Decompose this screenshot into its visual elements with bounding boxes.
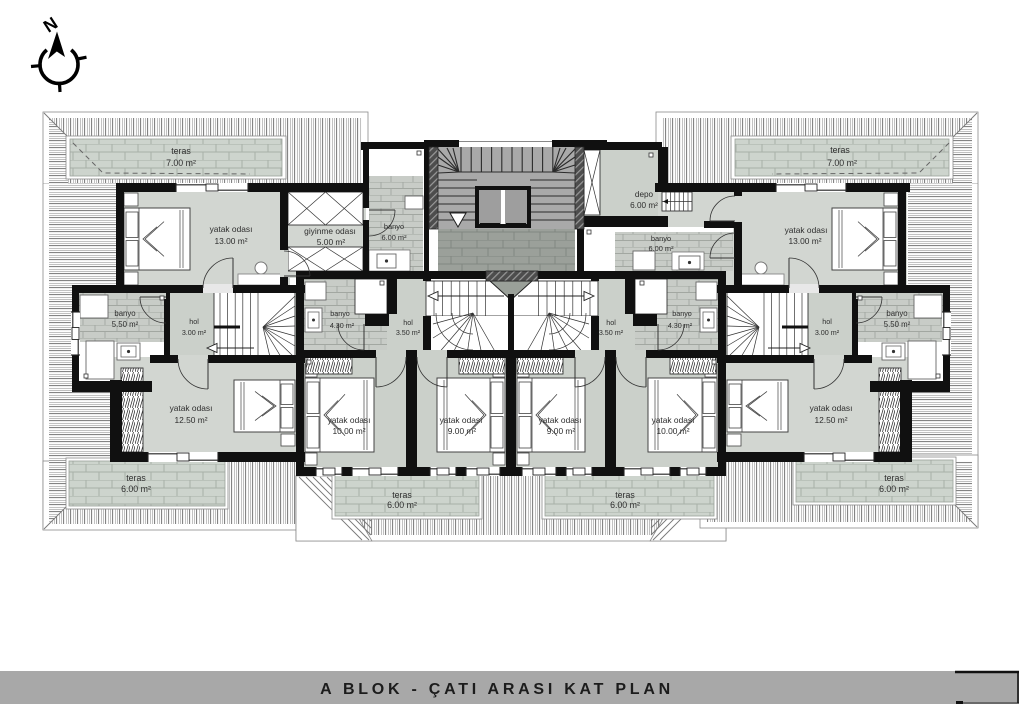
svg-text:yatak odası: yatak odası [210, 224, 253, 234]
svg-text:12.50 m²: 12.50 m² [814, 415, 847, 425]
svg-text:6.00 m²: 6.00 m² [387, 500, 417, 510]
svg-text:hol: hol [189, 317, 199, 326]
svg-text:6.00 m²: 6.00 m² [648, 244, 674, 253]
svg-text:banyo: banyo [886, 309, 908, 318]
svg-text:A BLOK - ÇATI ARASI KAT PLAN: A BLOK - ÇATI ARASI KAT PLAN [320, 681, 674, 698]
svg-text:yatak odası: yatak odası [810, 403, 853, 413]
svg-text:6.00 m²: 6.00 m² [630, 201, 658, 210]
svg-text:6.00 m²: 6.00 m² [879, 484, 909, 494]
svg-text:9.00 m²: 9.00 m² [547, 426, 576, 436]
svg-text:9.00 m²: 9.00 m² [448, 426, 477, 436]
svg-text:banyo: banyo [330, 309, 350, 318]
svg-text:7.00 m²: 7.00 m² [827, 158, 857, 168]
svg-text:teras: teras [126, 473, 146, 483]
svg-text:3.50 m²: 3.50 m² [599, 328, 624, 337]
svg-text:yatak odası: yatak odası [440, 415, 483, 425]
svg-text:3.00 m²: 3.00 m² [815, 328, 840, 337]
svg-text:banyo: banyo [384, 222, 404, 231]
svg-text:5.50 m²: 5.50 m² [112, 320, 139, 329]
svg-text:banyo: banyo [114, 309, 136, 318]
svg-text:4.30 m²: 4.30 m² [668, 321, 693, 330]
svg-text:banyo: banyo [672, 309, 692, 318]
svg-text:teras: teras [884, 473, 904, 483]
svg-text:13.00 m²: 13.00 m² [788, 236, 821, 246]
svg-text:depo: depo [635, 190, 654, 199]
svg-text:6.00 m²: 6.00 m² [610, 500, 640, 510]
svg-text:hol: hol [822, 317, 832, 326]
svg-text:yatak odası: yatak odası [539, 415, 582, 425]
svg-text:10.00 m²: 10.00 m² [656, 426, 689, 436]
svg-text:7.00 m²: 7.00 m² [166, 158, 196, 168]
svg-text:yatak odası: yatak odası [652, 415, 695, 425]
svg-text:teras: teras [615, 490, 635, 500]
svg-text:6.00 m²: 6.00 m² [121, 484, 151, 494]
svg-text:5.00 m²: 5.00 m² [317, 237, 346, 247]
svg-text:4.30 m²: 4.30 m² [330, 321, 355, 330]
svg-text:6.00 m²: 6.00 m² [381, 233, 407, 242]
svg-text:13.00 m²: 13.00 m² [214, 236, 247, 246]
svg-text:yatak odası: yatak odası [328, 415, 371, 425]
svg-text:giyinme odası: giyinme odası [304, 226, 356, 236]
svg-text:hol: hol [403, 318, 413, 327]
svg-text:teras: teras [392, 490, 412, 500]
svg-text:3.50 m²: 3.50 m² [396, 328, 421, 337]
svg-text:10.00 m²: 10.00 m² [332, 426, 365, 436]
svg-text:teras: teras [171, 146, 191, 156]
svg-text:5.50 m²: 5.50 m² [884, 320, 911, 329]
svg-text:3.00 m²: 3.00 m² [182, 328, 207, 337]
svg-text:banyo: banyo [651, 234, 671, 243]
svg-text:yatak odası: yatak odası [170, 403, 213, 413]
svg-text:teras: teras [830, 145, 850, 155]
svg-text:12.50 m²: 12.50 m² [174, 415, 207, 425]
svg-text:hol: hol [606, 318, 616, 327]
svg-text:N: N [40, 13, 61, 37]
svg-text:yatak odası: yatak odası [785, 225, 828, 235]
